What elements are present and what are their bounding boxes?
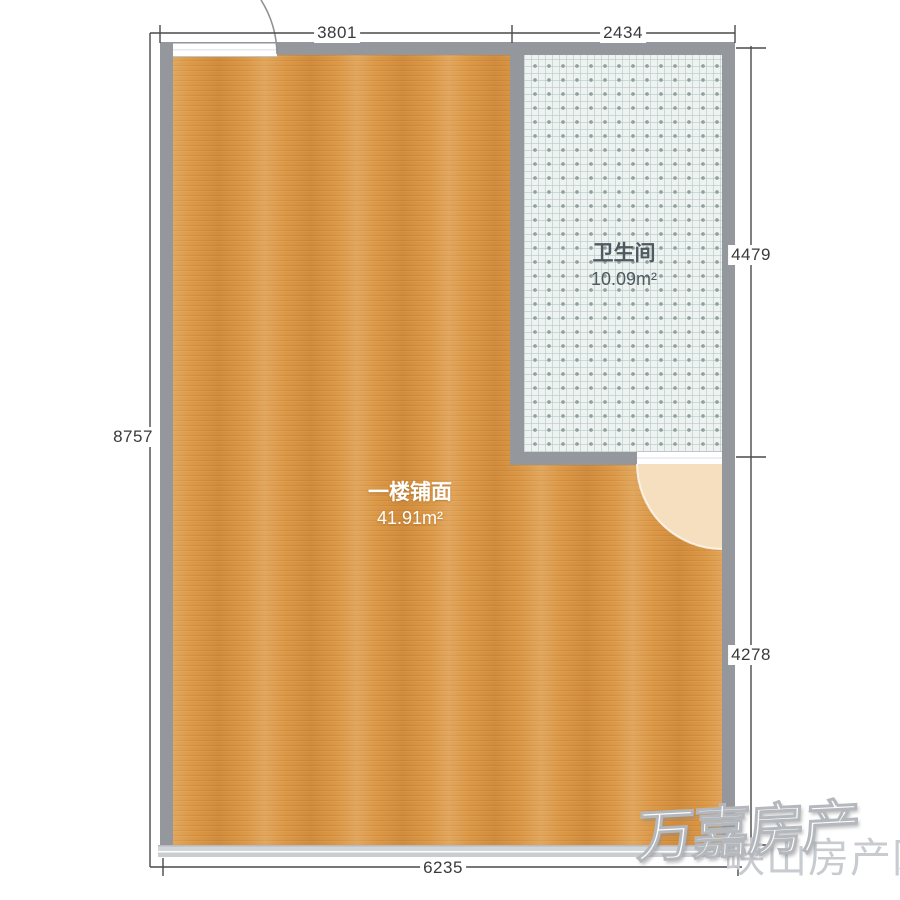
dimension-lines [150,25,766,876]
bathroom-door-swing [637,464,722,549]
dimension-bottom: 6235 [420,858,466,878]
watermark-agency-name: 万嘉房产 [635,780,860,873]
dimension-left: 8757 [110,427,156,447]
dimension-right-bottom: 4278 [728,645,774,665]
entry-door-arc [261,0,277,54]
dimension-top-right: 2434 [600,23,646,43]
dimension-right-top: 4479 [728,245,774,265]
plan-linework [0,0,900,900]
dimension-top-left: 3801 [314,23,360,43]
floor-plan: 3801 2434 8757 4479 4278 6235 一楼铺面 41.91… [0,0,900,900]
